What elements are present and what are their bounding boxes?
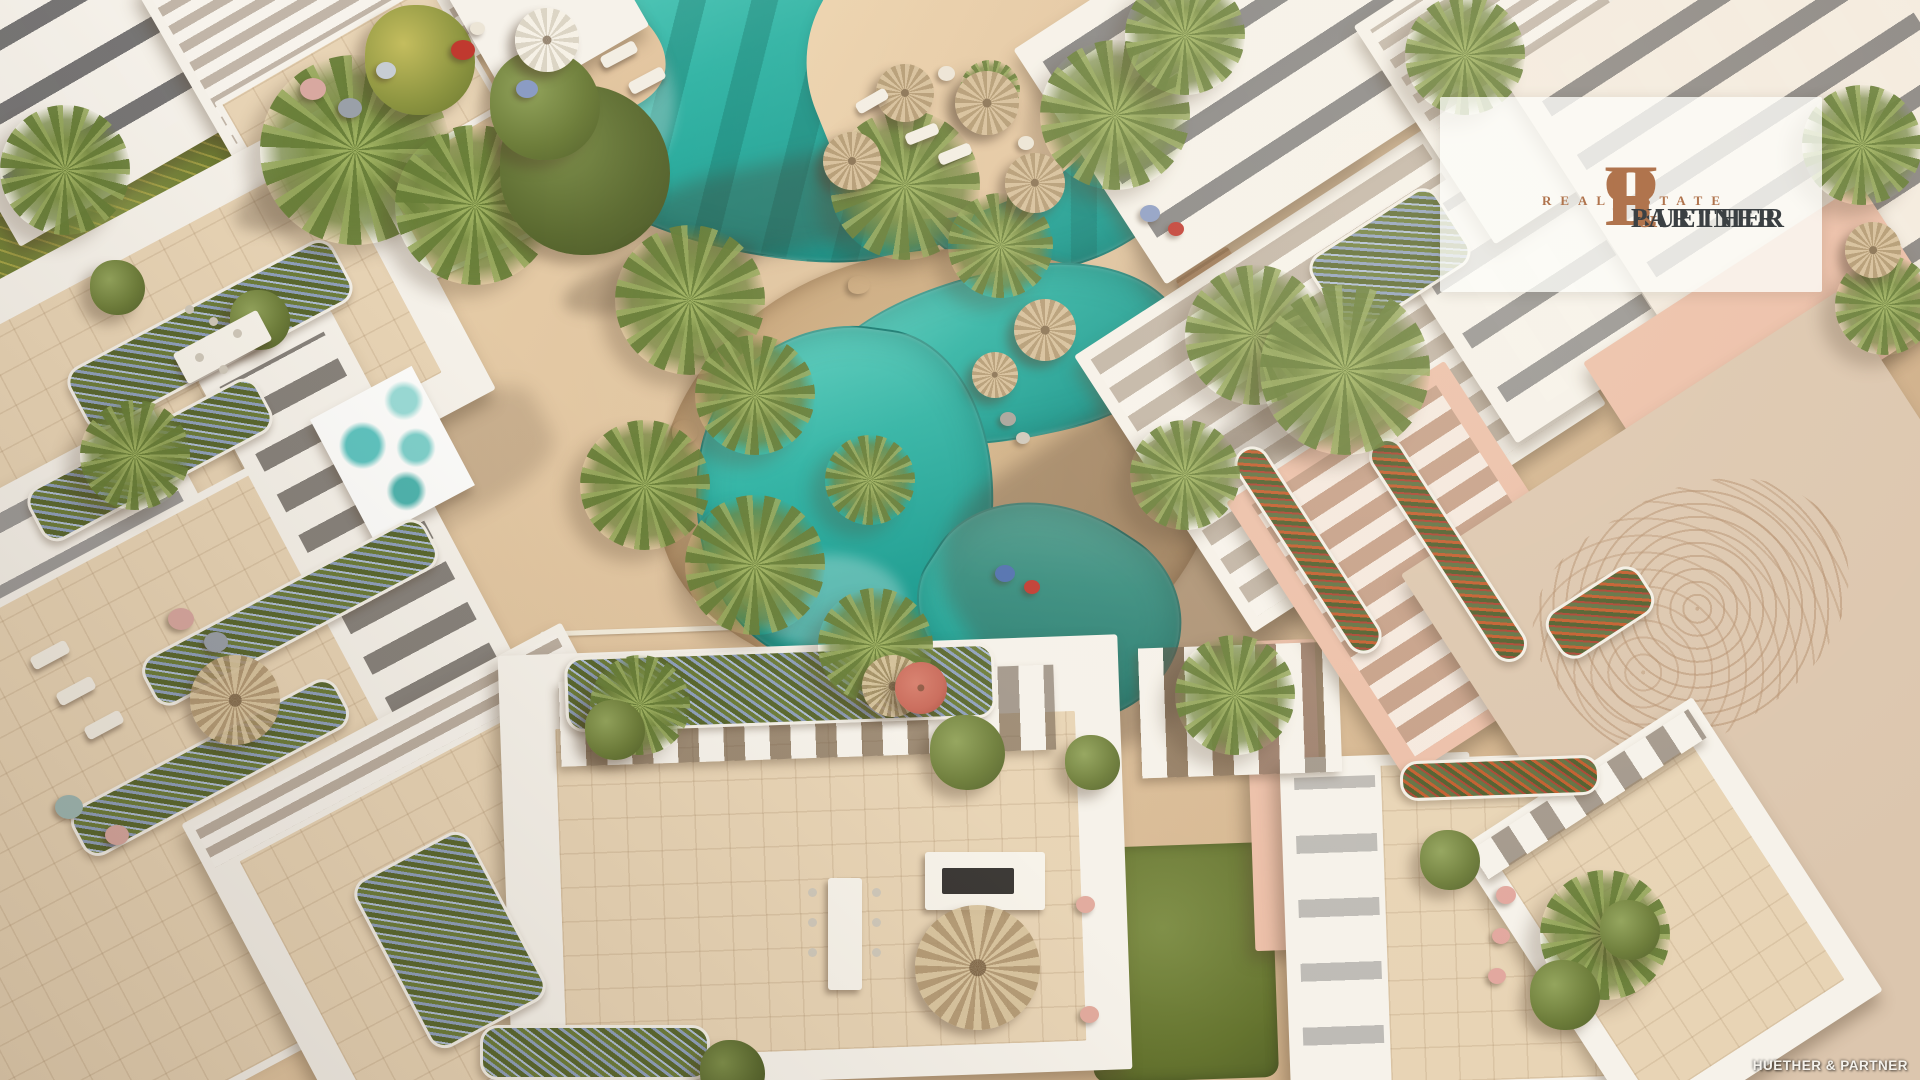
parasol: [972, 352, 1018, 398]
palm-tree: [1175, 635, 1295, 755]
flower-bed: [480, 1025, 710, 1080]
palm-tree: [0, 105, 130, 235]
palm-tree: [825, 435, 915, 525]
palm-tree: [580, 420, 710, 550]
parasol: [955, 71, 1019, 135]
planter-pot: [1080, 1006, 1099, 1023]
pouf: [300, 78, 326, 100]
pouf: [470, 22, 485, 35]
pouf: [1024, 580, 1040, 594]
chairs: [185, 305, 194, 314]
planter-pot: [1496, 886, 1516, 904]
chairs: [808, 888, 817, 897]
shrub: [1530, 960, 1600, 1030]
parasol: [1014, 299, 1076, 361]
pouf: [1140, 205, 1160, 222]
watermark: HUETHER & PARTNER: [1753, 1058, 1908, 1073]
shrub: [585, 700, 645, 760]
pouf: [451, 40, 475, 60]
brand-logo-card: P P HUETHER&PARTNER REAL ESTATE: [1440, 97, 1822, 292]
shrub: [90, 260, 145, 315]
aerial-resort-render: P P HUETHER&PARTNER REAL ESTATE HUETHER …: [0, 0, 1920, 1080]
pouf: [376, 62, 396, 79]
bbq-counter: [925, 852, 1045, 910]
shrub: [1065, 735, 1120, 790]
parasol: [1845, 222, 1901, 278]
planter-pot: [1488, 968, 1506, 984]
pouf: [995, 565, 1015, 582]
monogram-dash: [1616, 196, 1646, 205]
wicker-parasol: [915, 905, 1040, 1030]
palm-tree: [695, 335, 815, 455]
pouf: [105, 825, 129, 845]
parasol: [515, 8, 579, 72]
dining-table: [828, 878, 862, 990]
palm-tree: [685, 495, 825, 635]
shrub: [1600, 900, 1660, 960]
parasol: [1005, 153, 1065, 213]
pouf: [168, 608, 194, 630]
pouf: [55, 795, 83, 819]
parasol: [823, 132, 881, 190]
planter-pot: [1492, 928, 1510, 944]
seat: [1016, 432, 1030, 444]
palm-tree: [80, 400, 190, 510]
pouf: [1018, 136, 1034, 150]
pouf: [204, 632, 228, 652]
flowering-shrub: [365, 5, 475, 115]
pouf: [1168, 222, 1184, 236]
seat: [1000, 412, 1016, 426]
pouf: [516, 80, 538, 98]
palm-tree: [1130, 420, 1240, 530]
wicker-parasol: [190, 655, 280, 745]
parasol: [895, 662, 947, 714]
planter-pot: [1076, 896, 1095, 913]
flower-bed: [1399, 755, 1600, 802]
shrub: [930, 715, 1005, 790]
palm-tree: [1260, 285, 1430, 455]
pouf: [938, 66, 955, 81]
pouf: [338, 98, 362, 118]
shrub: [1420, 830, 1480, 890]
